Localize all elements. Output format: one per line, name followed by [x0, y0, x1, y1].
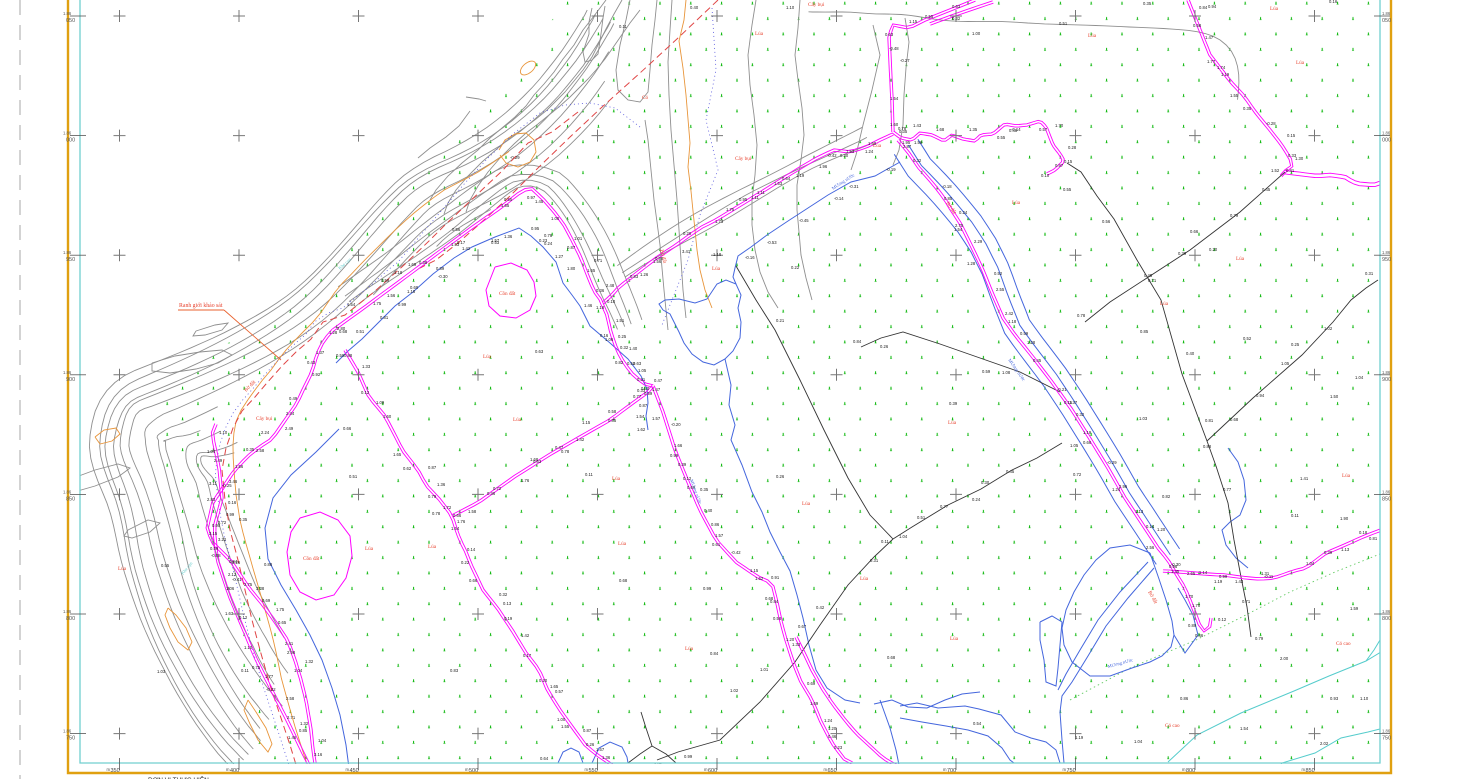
svg-text:0.46: 0.46	[828, 734, 837, 739]
svg-text:-0.30: -0.30	[1171, 562, 1181, 567]
svg-text:0.71: 0.71	[1148, 278, 1157, 283]
svg-text:0.55: 0.55	[925, 14, 934, 19]
svg-text:1.86: 1.86	[1382, 370, 1391, 375]
svg-text:0.93: 0.93	[1330, 696, 1339, 701]
svg-text:1.31: 1.31	[1261, 571, 1270, 576]
svg-text:0.38: 0.38	[419, 260, 428, 265]
svg-text:0.21: 0.21	[776, 318, 785, 323]
svg-text:1.60: 1.60	[383, 414, 392, 419]
svg-text:1.75: 1.75	[276, 607, 285, 612]
svg-text:0.66: 0.66	[453, 513, 462, 518]
svg-text:0.23: 0.23	[834, 745, 843, 750]
svg-text:Lúa: Lúa	[1088, 33, 1097, 39]
svg-text:0.35: 0.35	[239, 517, 248, 522]
svg-text:1.70: 1.70	[1192, 603, 1201, 608]
svg-text:0.99: 0.99	[226, 512, 235, 517]
svg-text:0.59: 0.59	[644, 391, 653, 396]
svg-text:0.52: 0.52	[994, 271, 1003, 276]
svg-text:0.11: 0.11	[881, 539, 890, 544]
svg-text:1.06: 1.06	[605, 337, 614, 342]
svg-text:3.15: 3.15	[209, 531, 218, 536]
svg-text:0.63: 0.63	[952, 4, 961, 9]
svg-text:800: 800	[1186, 768, 1195, 774]
svg-text:1.74: 1.74	[1217, 65, 1226, 70]
svg-text:950: 950	[1382, 257, 1391, 263]
svg-text:1.10: 1.10	[244, 645, 253, 650]
svg-text:Cây bụi: Cây bụi	[256, 416, 273, 422]
svg-text:0.62: 0.62	[403, 466, 412, 471]
svg-text:1.03: 1.03	[1139, 416, 1148, 421]
svg-text:1.03: 1.03	[157, 669, 166, 674]
svg-text:3.41: 3.41	[682, 249, 691, 254]
svg-text:1.54: 1.54	[890, 96, 899, 101]
svg-text:400: 400	[230, 768, 239, 774]
svg-text:0.42: 0.42	[816, 605, 825, 610]
svg-text:0.15: 0.15	[1064, 400, 1073, 405]
svg-text:-0.41: -0.41	[232, 577, 242, 582]
svg-text:1.18: 1.18	[394, 270, 403, 275]
svg-text:0.16: 0.16	[228, 500, 237, 505]
svg-text:1.18: 1.18	[1008, 319, 1017, 324]
svg-text:0.39: 0.39	[1324, 550, 1333, 555]
svg-text:0.87: 0.87	[567, 245, 576, 250]
svg-text:0.85: 0.85	[1140, 329, 1149, 334]
svg-text:0.41: 0.41	[1286, 168, 1295, 173]
svg-text:0.45: 0.45	[1262, 187, 1271, 192]
svg-text:-0.28: -0.28	[1266, 121, 1276, 126]
svg-text:2.55: 2.55	[996, 287, 1005, 292]
svg-text:3.16: 3.16	[314, 752, 323, 757]
svg-text:800: 800	[66, 616, 75, 622]
svg-text:0.18: 0.18	[1359, 530, 1368, 535]
svg-text:0.11: 0.11	[585, 472, 594, 477]
svg-text:0.56: 0.56	[1102, 219, 1111, 224]
svg-text:1.73: 1.73	[715, 219, 724, 224]
svg-text:1.53: 1.53	[774, 181, 783, 186]
svg-text:Lúa: Lúa	[873, 143, 882, 149]
svg-text:0.46: 0.46	[487, 491, 496, 496]
svg-text:-0.42: -0.42	[827, 153, 837, 158]
svg-text:0.54: 0.54	[973, 721, 982, 726]
svg-text:0.32: 0.32	[952, 16, 961, 21]
svg-text:1.10: 1.10	[1360, 696, 1369, 701]
svg-text:1.05: 1.05	[1281, 361, 1290, 366]
svg-text:Lúa: Lúa	[1342, 473, 1351, 479]
svg-text:0.24: 0.24	[544, 241, 553, 246]
svg-text:1.10: 1.10	[219, 430, 228, 435]
svg-text:1.42: 1.42	[462, 246, 471, 251]
svg-text:3.22: 3.22	[218, 537, 227, 542]
svg-text:0.17: 0.17	[523, 653, 532, 658]
svg-text:0.35: 0.35	[1243, 106, 1252, 111]
svg-text:Lúa: Lúa	[612, 476, 621, 482]
svg-text:1.00: 1.00	[551, 216, 560, 221]
svg-text:1.86: 1.86	[1382, 250, 1391, 255]
svg-text:0.56: 0.56	[452, 227, 461, 232]
svg-text:0.85: 0.85	[299, 728, 308, 733]
svg-text:1.40: 1.40	[629, 346, 638, 351]
svg-text:0.71: 0.71	[594, 258, 603, 263]
svg-text:0.68: 0.68	[887, 655, 896, 660]
svg-text:Cỏ cao: Cỏ cao	[1336, 641, 1351, 647]
svg-text:-0.53: -0.53	[767, 240, 777, 245]
svg-text:1.54: 1.54	[1240, 726, 1249, 731]
svg-text:0.95: 0.95	[739, 197, 748, 202]
svg-text:0.24: 0.24	[959, 210, 968, 215]
svg-text:0.84: 0.84	[1199, 5, 1208, 10]
svg-text:0.86: 0.86	[1180, 696, 1189, 701]
svg-text:0.89: 0.89	[436, 266, 445, 271]
svg-text:0.99: 0.99	[398, 302, 407, 307]
svg-text:1.15: 1.15	[750, 568, 759, 573]
svg-text:0.39: 0.39	[678, 462, 687, 467]
svg-text:1.65: 1.65	[501, 203, 510, 208]
svg-text:0.81: 0.81	[1205, 418, 1214, 423]
svg-text:1.19: 1.19	[1075, 735, 1084, 740]
svg-text:1.13: 1.13	[1135, 509, 1144, 514]
svg-text:1.04: 1.04	[207, 449, 216, 454]
svg-text:000: 000	[1382, 138, 1391, 144]
svg-text:1.04: 1.04	[1306, 561, 1315, 566]
svg-text:1.67: 1.67	[596, 747, 605, 752]
svg-text:Ranh giới khảo sát: Ranh giới khảo sát	[179, 303, 223, 309]
svg-text:0.79: 0.79	[1255, 636, 1264, 641]
svg-text:-0.25: -0.25	[222, 483, 232, 488]
svg-text:1.54: 1.54	[451, 526, 460, 531]
svg-text:0.77: 0.77	[633, 394, 642, 399]
svg-text:0.68: 0.68	[1230, 417, 1239, 422]
svg-text:Lúa: Lúa	[950, 636, 959, 642]
svg-text:3.38: 3.38	[256, 586, 265, 591]
svg-text:0.95: 0.95	[531, 226, 540, 231]
svg-text:0.69: 0.69	[807, 681, 816, 686]
svg-text:0.35: 0.35	[246, 447, 255, 452]
svg-text:0.20: 0.20	[683, 231, 692, 236]
svg-text:0.52: 0.52	[627, 361, 636, 366]
svg-text:-0.20: -0.20	[671, 422, 681, 427]
svg-text:0.11: 0.11	[619, 24, 628, 29]
svg-text:0.99: 0.99	[684, 754, 693, 759]
svg-text:0.55: 0.55	[504, 197, 513, 202]
svg-text:0.32: 0.32	[913, 158, 922, 163]
svg-text:2.58: 2.58	[286, 696, 295, 701]
svg-text:0.51: 0.51	[356, 329, 365, 334]
svg-text:1.86: 1.86	[1382, 609, 1391, 614]
svg-text:1.05: 1.05	[1070, 443, 1079, 448]
svg-text:2.71: 2.71	[287, 715, 296, 720]
svg-text:0.24: 0.24	[972, 497, 981, 502]
svg-text:2.48: 2.48	[606, 283, 615, 288]
svg-text:1.45: 1.45	[1171, 569, 1180, 574]
svg-text:700: 700	[947, 768, 956, 774]
svg-text:0.59: 0.59	[982, 369, 991, 374]
svg-text:1.28: 1.28	[1027, 340, 1036, 345]
svg-text:1.56: 1.56	[914, 140, 923, 145]
svg-text:0.81: 0.81	[380, 315, 389, 320]
svg-text:0.77: 0.77	[1223, 487, 1232, 492]
svg-text:0.78: 0.78	[544, 233, 553, 238]
svg-text:1.04: 1.04	[899, 534, 908, 539]
svg-text:1.47: 1.47	[1205, 35, 1214, 40]
svg-text:0.30: 0.30	[981, 480, 990, 485]
svg-text:0.77: 0.77	[940, 504, 949, 509]
svg-text:1.36: 1.36	[437, 482, 446, 487]
svg-text:1.36: 1.36	[504, 234, 513, 239]
svg-text:1.37: 1.37	[316, 350, 325, 355]
svg-text:1.96: 1.96	[819, 164, 828, 169]
svg-text:0.63: 0.63	[533, 459, 542, 464]
svg-text:1.56: 1.56	[387, 293, 396, 298]
svg-text:0.16: 0.16	[1329, 0, 1338, 4]
svg-text:1.00: 1.00	[557, 717, 566, 722]
svg-text:0.59: 0.59	[1020, 331, 1029, 336]
svg-text:0.58: 0.58	[608, 409, 617, 414]
svg-text:0.84: 0.84	[710, 651, 719, 656]
svg-text:Lúa: Lúa	[802, 501, 811, 507]
svg-text:0.94: 0.94	[1208, 4, 1217, 9]
svg-text:0.88: 0.88	[264, 562, 273, 567]
svg-text:1.32: 1.32	[305, 659, 314, 664]
svg-text:1.86: 1.86	[63, 489, 72, 494]
svg-text:0.31: 0.31	[637, 377, 646, 382]
svg-text:0.86: 0.86	[711, 522, 720, 527]
svg-text:3.11: 3.11	[209, 481, 218, 486]
svg-text:0.90: 0.90	[212, 523, 221, 528]
svg-text:1.18: 1.18	[596, 305, 605, 310]
svg-text:Lúa: Lúa	[1160, 301, 1169, 307]
svg-text:0.12: 0.12	[1218, 617, 1227, 622]
svg-text:0.25: 0.25	[1291, 342, 1300, 347]
svg-text:0.51: 0.51	[1059, 21, 1068, 26]
svg-text:Lúa: Lúa	[1296, 60, 1305, 66]
svg-text:1.02: 1.02	[1324, 326, 1333, 331]
svg-text:2.65: 2.65	[1187, 571, 1196, 576]
svg-text:1.28: 1.28	[329, 330, 338, 335]
svg-text:0.39: 0.39	[1178, 251, 1187, 256]
svg-text:0.68: 0.68	[619, 578, 628, 583]
svg-text:1.62: 1.62	[755, 576, 764, 581]
svg-text:0.26: 0.26	[232, 560, 241, 565]
svg-text:0.13: 0.13	[503, 601, 512, 606]
svg-text:2.83: 2.83	[207, 497, 216, 502]
svg-text:Lúa: Lúa	[1236, 256, 1245, 262]
svg-text:1.77: 1.77	[265, 674, 274, 679]
svg-text:0.45: 0.45	[1144, 273, 1153, 278]
svg-text:0.81: 0.81	[1369, 536, 1378, 541]
svg-text:1.70: 1.70	[1055, 123, 1064, 128]
svg-text:-0.18: -0.18	[942, 184, 952, 189]
svg-text:1.27: 1.27	[555, 254, 564, 259]
svg-text:0.10: 0.10	[607, 299, 616, 304]
svg-text:2.56: 2.56	[1146, 545, 1155, 550]
svg-text:0.97: 0.97	[1055, 163, 1064, 168]
svg-text:0.58: 0.58	[1193, 23, 1202, 28]
svg-text:900: 900	[1382, 377, 1391, 383]
svg-text:1.55: 1.55	[1230, 93, 1239, 98]
svg-text:0.82: 0.82	[615, 360, 624, 365]
svg-text:0.94: 0.94	[1256, 393, 1265, 398]
svg-text:1.47: 1.47	[652, 387, 661, 392]
svg-text:1.76: 1.76	[457, 519, 466, 524]
svg-text:0.15: 0.15	[1064, 159, 1073, 164]
svg-text:0.39: 0.39	[949, 401, 958, 406]
svg-text:0.69: 0.69	[262, 598, 271, 603]
svg-text:0.57: 0.57	[1039, 127, 1048, 132]
svg-text:Lúa: Lúa	[118, 566, 127, 572]
svg-text:0.66: 0.66	[343, 426, 352, 431]
svg-text:0.71: 0.71	[1242, 599, 1251, 604]
svg-text:0.78: 0.78	[1077, 313, 1086, 318]
svg-text:0.40: 0.40	[690, 5, 699, 10]
svg-text:0.79: 0.79	[1230, 213, 1239, 218]
svg-text:0.14: 0.14	[467, 547, 476, 552]
svg-text:1.28: 1.28	[967, 261, 976, 266]
svg-text:2.96: 2.96	[1119, 484, 1128, 489]
svg-text:1.19: 1.19	[1221, 72, 1230, 77]
svg-text:2.02: 2.02	[1320, 741, 1329, 746]
svg-text:1.15: 1.15	[909, 19, 918, 24]
svg-text:900: 900	[66, 377, 75, 383]
svg-text:1.86: 1.86	[63, 11, 72, 16]
svg-text:2.98: 2.98	[287, 650, 296, 655]
svg-text:Cỏ cao: Cỏ cao	[1165, 723, 1180, 729]
svg-text:0.55: 0.55	[161, 563, 170, 568]
svg-text:1.86: 1.86	[1382, 131, 1391, 136]
svg-text:350: 350	[111, 768, 120, 774]
svg-text:1.52: 1.52	[1271, 168, 1280, 173]
svg-text:1.15: 1.15	[582, 420, 591, 425]
svg-text:0.88: 0.88	[1203, 444, 1212, 449]
svg-text:Lúa: Lúa	[685, 646, 694, 652]
svg-text:0.59: 0.59	[381, 278, 390, 283]
svg-text:1.46: 1.46	[288, 735, 297, 740]
svg-text:2.80: 2.80	[337, 326, 346, 331]
svg-text:1.76: 1.76	[521, 478, 530, 483]
svg-text:1.43: 1.43	[913, 123, 922, 128]
svg-text:0.58: 0.58	[773, 616, 782, 621]
svg-text:0.65: 0.65	[278, 620, 287, 625]
svg-text:1.86: 1.86	[1382, 729, 1391, 734]
svg-text:1.63: 1.63	[225, 611, 234, 616]
svg-text:1.54: 1.54	[347, 302, 356, 307]
svg-text:1.65: 1.65	[393, 452, 402, 457]
svg-text:0.59: 0.59	[210, 546, 219, 551]
svg-text:1.57: 1.57	[652, 416, 661, 421]
svg-text:1.33: 1.33	[362, 364, 371, 369]
svg-text:0.57: 0.57	[555, 689, 564, 694]
svg-text:0.99: 0.99	[670, 453, 679, 458]
svg-text:0.11: 0.11	[241, 668, 250, 673]
svg-text:0.22: 0.22	[791, 265, 800, 270]
svg-text:0.26: 0.26	[880, 344, 889, 349]
svg-text:450: 450	[350, 768, 359, 774]
svg-text:-0.32: -0.32	[266, 687, 276, 692]
svg-text:2.58: 2.58	[256, 448, 265, 453]
svg-text:1.14: 1.14	[1199, 570, 1208, 575]
svg-text:0.10: 0.10	[1041, 173, 1050, 178]
svg-text:1.11: 1.11	[751, 195, 760, 200]
svg-text:1.69: 1.69	[408, 262, 417, 267]
svg-text:Cồn đất: Cồn đất	[499, 290, 516, 297]
svg-text:2.87: 2.87	[903, 144, 912, 149]
svg-text:1.42: 1.42	[576, 437, 585, 442]
svg-text:0.43: 0.43	[307, 360, 316, 365]
svg-text:850: 850	[66, 496, 75, 502]
svg-text:0.75: 0.75	[252, 665, 261, 670]
svg-text:800: 800	[1382, 616, 1391, 622]
svg-text:Lúa: Lúa	[365, 546, 374, 552]
svg-text:0.72: 0.72	[1073, 472, 1082, 477]
svg-text:1.59: 1.59	[1350, 606, 1359, 611]
svg-text:0.67: 0.67	[798, 624, 807, 629]
svg-text:Cây bụi: Cây bụi	[735, 156, 752, 162]
svg-text:0.31: 0.31	[1365, 271, 1374, 276]
svg-text:0.52: 0.52	[1243, 336, 1252, 341]
svg-text:0.63: 0.63	[885, 32, 894, 37]
svg-text:1.33: 1.33	[792, 642, 801, 647]
svg-text:Lúa: Lúa	[618, 541, 627, 547]
svg-text:0.47: 0.47	[654, 378, 663, 383]
svg-text:-0.42: -0.42	[731, 550, 741, 555]
svg-text:0.87: 0.87	[639, 403, 648, 408]
svg-text:0.79: 0.79	[428, 494, 437, 499]
svg-text:-0.30: -0.30	[438, 274, 448, 279]
svg-text:0.66: 0.66	[469, 578, 478, 583]
svg-text:0.17: 0.17	[457, 240, 466, 245]
svg-text:1.86: 1.86	[63, 250, 72, 255]
svg-text:0.31: 0.31	[870, 558, 879, 563]
svg-text:1.42: 1.42	[521, 633, 530, 638]
svg-text:0.46: 0.46	[1195, 633, 1204, 638]
svg-text:0.63: 0.63	[535, 349, 544, 354]
svg-text:Lúa: Lúa	[513, 417, 522, 423]
svg-text:0.72: 0.72	[493, 486, 502, 491]
svg-text:Cỏ: Cỏ	[642, 95, 648, 101]
svg-text:0.66: 0.66	[1083, 440, 1092, 445]
svg-text:0.87: 0.87	[428, 465, 437, 470]
svg-text:550: 550	[589, 768, 598, 774]
svg-text:0.26: 0.26	[586, 742, 595, 747]
svg-text:2.29: 2.29	[974, 239, 983, 244]
svg-text:2.42: 2.42	[1005, 311, 1014, 316]
svg-text:1.54: 1.54	[636, 414, 645, 419]
svg-text:0.51: 0.51	[349, 474, 358, 479]
svg-text:1.50: 1.50	[1330, 394, 1339, 399]
svg-text:1.43: 1.43	[1235, 579, 1244, 584]
svg-text:0.12: 0.12	[361, 390, 370, 395]
svg-text:1.24: 1.24	[1112, 487, 1121, 492]
svg-text:2.00: 2.00	[1280, 656, 1289, 661]
svg-text:-0.48: -0.48	[889, 46, 899, 51]
svg-text:750: 750	[1067, 768, 1076, 774]
svg-text:750: 750	[66, 736, 75, 742]
svg-text:1.19: 1.19	[1214, 579, 1223, 584]
svg-text:1.18: 1.18	[713, 252, 722, 257]
svg-text:Lúa: Lúa	[428, 544, 437, 550]
svg-text:050: 050	[1382, 18, 1391, 24]
svg-text:0.87: 0.87	[583, 728, 592, 733]
svg-text:1.72: 1.72	[443, 505, 452, 510]
svg-text:0.55: 0.55	[997, 135, 1006, 140]
svg-text:1.70: 1.70	[1185, 594, 1194, 599]
svg-text:0.69: 0.69	[410, 285, 419, 290]
svg-text:1.77: 1.77	[1207, 59, 1216, 64]
svg-text:1.75: 1.75	[726, 207, 735, 212]
svg-text:0.32: 0.32	[620, 345, 629, 350]
svg-text:0.64: 0.64	[782, 176, 791, 181]
svg-text:0.78: 0.78	[898, 126, 907, 131]
svg-text:0.11: 0.11	[1291, 513, 1300, 518]
